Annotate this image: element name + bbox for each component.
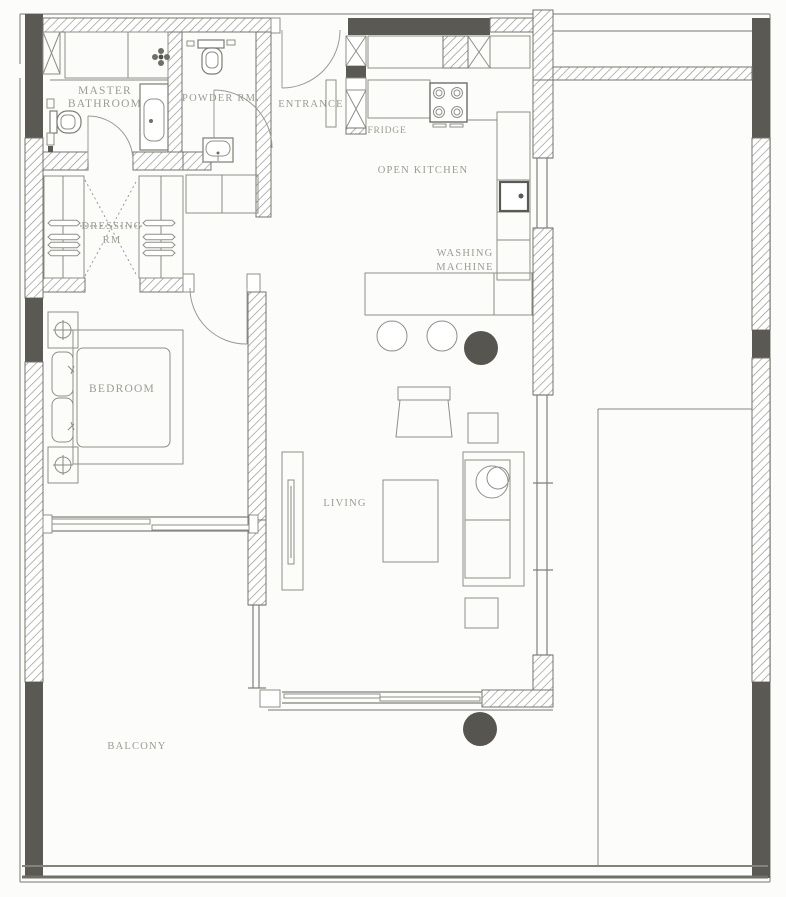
wall-right-hatch-1 [752, 138, 770, 330]
label-washing-machine-2: MACHINE [436, 262, 493, 273]
living-west-window [248, 605, 266, 688]
label-fridge: FRIDGE [367, 126, 406, 136]
wall-left-hatch-2 [25, 362, 43, 682]
wall-top-dark [348, 18, 490, 35]
stove-burners-icon [430, 83, 467, 127]
bedroom-sliding-door [43, 515, 258, 533]
wall-bath-bottom-2 [133, 152, 183, 170]
living-window [533, 395, 553, 655]
dressing-room-fixtures [44, 175, 258, 278]
wardrobe-hangers-icon [44, 176, 84, 278]
doors [88, 30, 340, 344]
wall-entry-stub [346, 128, 366, 134]
coffee-table [383, 480, 438, 562]
wall-kitchen-east-1 [533, 80, 553, 158]
entrance-door-arc [282, 30, 340, 88]
label-master-bathroom-2: BATHROOM [68, 98, 142, 110]
bedroom-door-arc [190, 288, 247, 344]
island-counter [365, 273, 532, 315]
bar-stool-icon [377, 321, 407, 351]
side-table [465, 598, 498, 628]
wall-accessory [47, 99, 54, 108]
wall-entry-dark-block [346, 66, 366, 78]
wall-left-dark-2 [25, 298, 43, 362]
label-entrance: ENTRANCE [278, 99, 344, 110]
bar-stool-icon [427, 321, 457, 351]
floorplan-canvas: MASTER BATHROOM POWDER RM. ENTRANCE FRID… [0, 0, 786, 892]
wardrobe-hangers-icon [139, 176, 183, 278]
cabinet-hatch-cell [443, 36, 468, 68]
toilet-icon [50, 111, 81, 133]
wall-right-dark-2 [752, 330, 770, 358]
wall-right-hatch-2 [752, 358, 770, 682]
cabinet-x-cell [468, 36, 490, 68]
wall-top-right-band [553, 67, 752, 80]
terrace-zone-line [598, 409, 752, 866]
round-plant-dot [463, 712, 497, 746]
bedroom-door-jamb-right [247, 274, 260, 292]
kitchen-window [533, 158, 553, 228]
pillow [52, 352, 73, 396]
pillow [52, 398, 73, 442]
bathtub-icon [140, 84, 168, 150]
living-room-fixtures [282, 387, 524, 628]
tv-console-icon [282, 452, 303, 590]
sofa-icon [463, 452, 524, 586]
armchair-icon [396, 387, 452, 437]
wall-right-dark-3 [752, 682, 770, 878]
sliding-corner-jamb [260, 690, 280, 707]
shower-partition-line [50, 32, 168, 80]
wall-kitchen-east-2 [533, 228, 553, 395]
label-master-bathroom-1: MASTER [78, 85, 132, 97]
wall-dressing-bottom-1 [43, 278, 85, 292]
round-cushion [476, 466, 508, 498]
wall-left-dark-1 [25, 14, 43, 138]
wall-bath-divider [168, 32, 182, 152]
label-powder-room: POWDER RM. [182, 93, 260, 104]
bedroom-fixtures [48, 312, 183, 483]
washing-machine-icon [500, 182, 528, 211]
round-plant-dot [464, 331, 498, 365]
counter-left [368, 80, 430, 118]
sink-icon [203, 138, 233, 162]
toilet-icon [187, 40, 235, 74]
wall-accessory-dark [48, 146, 53, 152]
side-table [468, 413, 498, 443]
wall-left-hatch-1 [25, 138, 43, 298]
wall-living-south-corner [482, 690, 553, 707]
wall-top-hatch-1 [43, 18, 271, 32]
wall-bedroom-right [248, 292, 266, 520]
bedroom-door-jamb-left [183, 274, 194, 292]
label-dressing-room-2: RM [103, 235, 122, 246]
label-living: LIVING [323, 498, 366, 509]
wall-right-dark-1 [752, 18, 770, 138]
label-dressing-room-1: DRESSING [82, 221, 143, 232]
label-washing-machine-1: WASHING [437, 248, 494, 259]
wall-top-connector [533, 10, 553, 80]
entrance-door-jamb [271, 18, 280, 33]
interior-walls [43, 32, 553, 707]
shower-deck [65, 32, 168, 78]
master-bath-door-arc [88, 116, 133, 161]
label-balcony: BALCONY [107, 741, 166, 752]
shower-head-icon [152, 48, 170, 66]
wall-left-dark-3 [25, 682, 43, 878]
room-labels: MASTER BATHROOM POWDER RM. ENTRANCE FRID… [68, 85, 494, 752]
label-open-kitchen: OPEN KITCHEN [378, 165, 469, 176]
label-bedroom: BEDROOM [89, 383, 155, 395]
wall-accessory [47, 133, 54, 145]
floor-plan-svg: MASTER BATHROOM POWDER RM. ENTRANCE FRID… [0, 0, 786, 892]
wall-bath-bottom-1 [43, 152, 88, 170]
duct-shaft-x [43, 32, 60, 74]
double-bed-icon [52, 330, 183, 464]
entry-jamb-block [346, 78, 366, 90]
